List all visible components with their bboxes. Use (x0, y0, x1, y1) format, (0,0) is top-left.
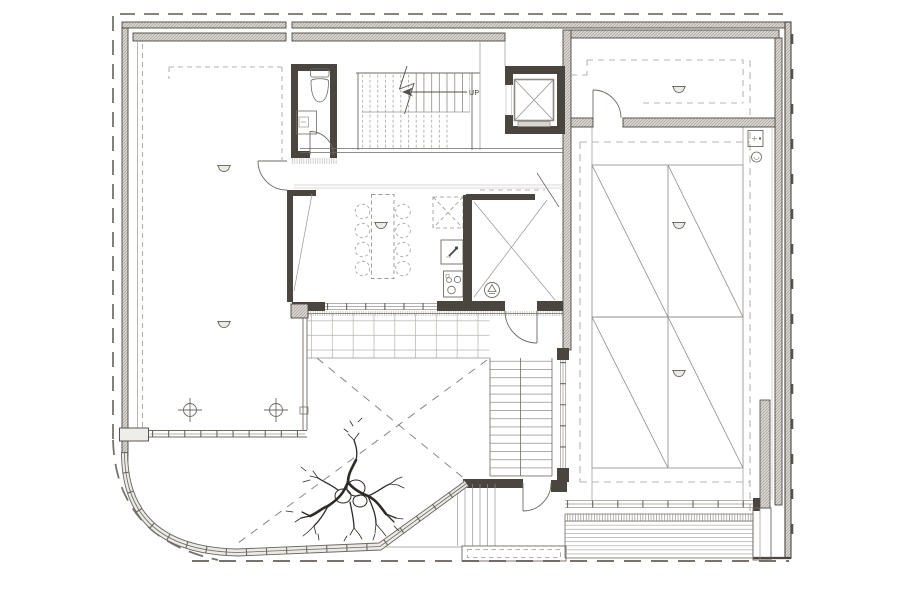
wc-door-arc (310, 132, 334, 156)
toilet-bowl-icon (311, 79, 329, 102)
wall-socket-symbol (752, 152, 762, 162)
terrace-cross-dashed (234, 358, 487, 546)
dining-table (372, 195, 395, 279)
panel-connectors (592, 127, 743, 500)
terrace-west-glazing (303, 318, 307, 430)
sw-wall-seg (551, 480, 567, 492)
wall-hatch-strip (291, 158, 337, 164)
floor-plan-canvas: UP (0, 0, 920, 590)
deck-boards (565, 521, 753, 558)
ceiling-light-icon (672, 223, 686, 229)
door-swing-arc (258, 161, 287, 190)
east-wall-lower (760, 400, 770, 508)
burner-icon (448, 286, 456, 294)
tree (286, 418, 404, 541)
elevator-sill (518, 122, 550, 127)
ceiling-light-icon (672, 87, 686, 93)
kitchen-wall (463, 195, 472, 303)
glazing-panels (592, 165, 743, 468)
faucet-icon (449, 249, 456, 256)
wall-east-inner (775, 38, 782, 505)
skylight-dashed-box (433, 197, 463, 228)
hall-door-arc (523, 483, 551, 511)
deck-end-block (753, 508, 771, 560)
window-block (753, 498, 760, 511)
wc (291, 64, 337, 164)
wall-west (122, 28, 128, 462)
window-block (557, 348, 569, 360)
cooktop-mark (446, 275, 449, 278)
ceiling-light-icon (374, 223, 388, 229)
column-target-symbol (178, 398, 202, 422)
dining-chairs (355, 204, 410, 276)
south-window-band (148, 431, 307, 438)
pantry (466, 173, 559, 300)
corner-pier (291, 304, 308, 318)
curved-curtain-wall (122, 452, 469, 556)
wall-inner-top-a (133, 33, 286, 41)
burner-icon (447, 278, 452, 283)
planter-inner-dashed (468, 550, 561, 558)
floor-plan-screenshot: UP (0, 0, 920, 590)
column-target-symbol (264, 398, 288, 422)
stair-up-label: UP (469, 90, 480, 97)
drain-symbol (485, 283, 500, 298)
planter (462, 546, 566, 561)
entry-steps (458, 484, 496, 546)
upper-right-room (571, 60, 775, 500)
ceiling-dashed-rect (571, 60, 743, 103)
sink-icon (297, 111, 317, 134)
window-end-block (120, 428, 149, 441)
kitchenette (433, 195, 472, 303)
burner-icon (454, 276, 460, 282)
ceiling-light-icon (217, 166, 231, 172)
terrace-paving (308, 314, 490, 358)
landing-edge (294, 185, 563, 188)
partition (258, 161, 316, 302)
partition-stub (293, 190, 316, 196)
south-window-glazing (325, 304, 437, 310)
outdoor-stair (490, 358, 552, 476)
ceiling-light-icon (217, 322, 231, 328)
partition-diagonal (294, 194, 312, 291)
south-wall-seg (623, 118, 775, 127)
elevator (505, 66, 565, 134)
left-hall (120, 41, 308, 441)
planter-box (462, 546, 566, 561)
room-door-arc (593, 90, 621, 118)
south-wall-seg (537, 301, 563, 311)
south-wall-seg (571, 118, 593, 127)
wall-inner-top-b (292, 33, 505, 41)
sw-wall-seg (463, 479, 523, 488)
wall-east-outer (785, 22, 791, 558)
pantry-top-wall (466, 194, 535, 200)
west-window-glazing (561, 360, 566, 468)
faucet-dot (455, 246, 458, 249)
partition-wall (287, 190, 293, 302)
louver-strip (565, 514, 753, 521)
wall-top-left (122, 22, 286, 28)
ceiling-light-icon (672, 371, 686, 377)
stair-treads-dashed-lower (362, 112, 452, 150)
boundary-curve (113, 440, 218, 560)
window-block (557, 468, 569, 482)
wall-inner-top-c (571, 30, 779, 38)
wall-top-right (292, 22, 789, 28)
pantry-door-diagonal (537, 173, 559, 207)
ceiling-dashed-rect (580, 60, 750, 515)
elevator-door-lines (506, 85, 512, 116)
